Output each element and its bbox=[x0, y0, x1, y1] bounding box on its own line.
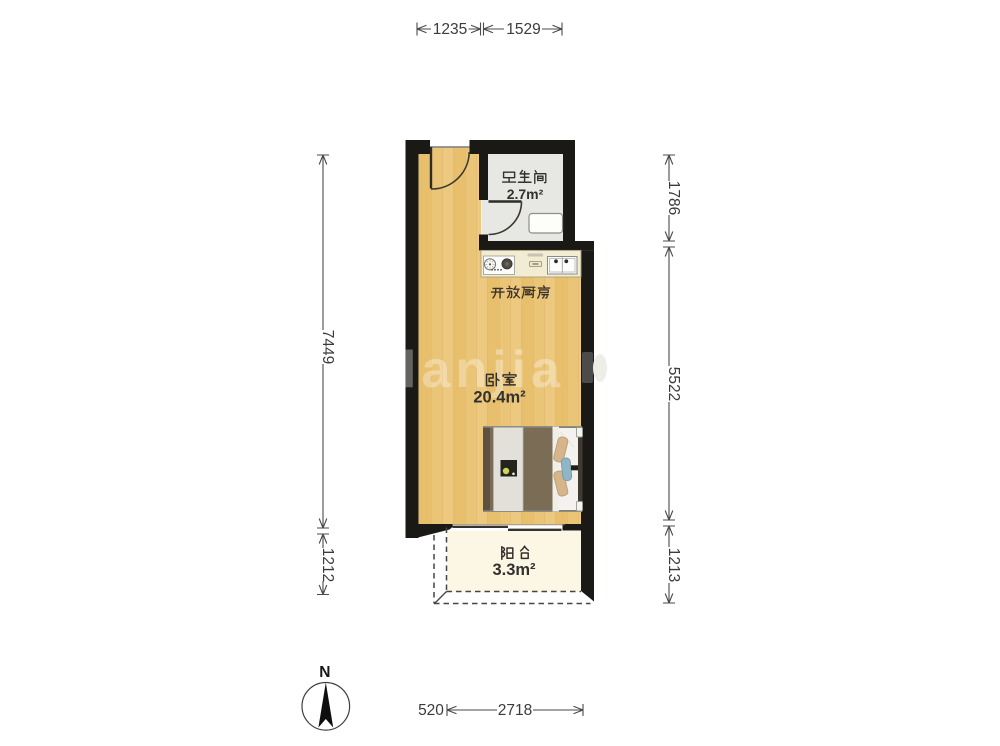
svg-text:20.4m²: 20.4m² bbox=[473, 389, 526, 407]
svg-text:2.7m²: 2.7m² bbox=[507, 186, 544, 202]
svg-text:1212: 1212 bbox=[319, 548, 336, 582]
svg-text:520: 520 bbox=[418, 702, 444, 719]
svg-text:3.3m²: 3.3m² bbox=[492, 561, 536, 579]
svg-text:N: N bbox=[319, 664, 330, 681]
svg-text:1529: 1529 bbox=[506, 21, 540, 38]
svg-text:2718: 2718 bbox=[498, 702, 532, 719]
svg-text:5522: 5522 bbox=[665, 367, 682, 401]
svg-text:1235: 1235 bbox=[433, 21, 467, 38]
svg-text:7449: 7449 bbox=[319, 330, 336, 364]
svg-text:1213: 1213 bbox=[665, 548, 682, 582]
svg-text:1786: 1786 bbox=[665, 181, 682, 215]
